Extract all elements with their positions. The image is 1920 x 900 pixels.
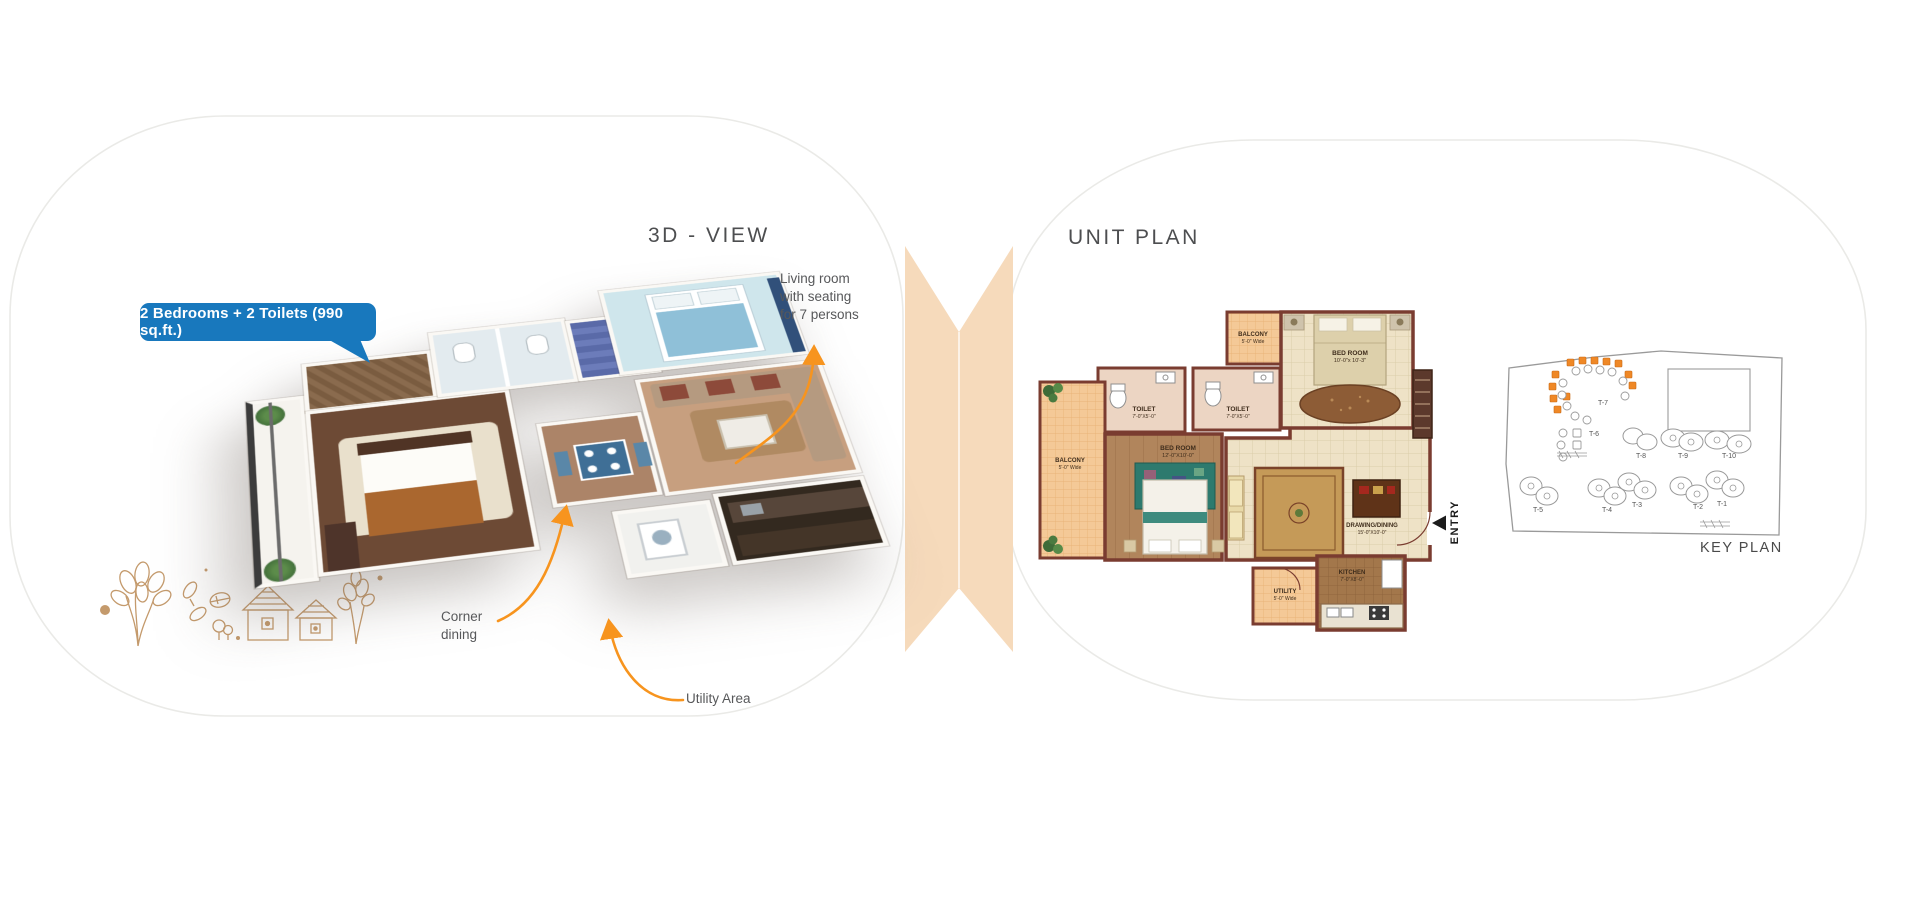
key-plan-tower-t1: T-1 — [1717, 501, 1727, 508]
3d-toilets — [428, 318, 579, 397]
label-balcony-left-size: 5'-0" Wide — [1059, 465, 1082, 471]
unit-plan-title: UNIT PLAN — [1068, 226, 1200, 250]
3d-kitchen — [713, 476, 890, 565]
center-fold-band — [905, 246, 1013, 652]
entry-label: ENTRY — [1449, 500, 1465, 558]
key-plan-tower-t2: T-2 — [1693, 504, 1703, 511]
key-plan-tower-t3: T-3 — [1632, 502, 1642, 509]
label-balcony-top-size: 5'-0" Wide — [1242, 339, 1265, 345]
unit-type-badge-label: 2 Bedrooms + 2 Toilets (990 sq.ft.) — [140, 305, 376, 339]
3d-living-room — [635, 359, 862, 496]
label-balcony-left-name: BALCONY — [1055, 458, 1085, 464]
key-plan-tower-t4: T-4 — [1602, 507, 1612, 514]
key-plan-tower-t8: T-8 — [1636, 453, 1646, 460]
label-bedroom-top-size: 10'-0"x 10'-3" — [1334, 358, 1366, 364]
label-bedroom-mid-name: BED ROOM — [1160, 445, 1196, 452]
label-utility-name: UTILITY — [1274, 589, 1297, 595]
3d-dining — [536, 412, 663, 508]
plan-ornate-rug — [1255, 468, 1343, 558]
plan-console — [1353, 480, 1400, 517]
brochure-page: { "badge": { "label": "2 Bedrooms + 2 To… — [0, 0, 1920, 900]
label-kitchen-name: KITCHEN — [1339, 570, 1366, 576]
label-toilet-left-name: TOILET — [1133, 406, 1156, 413]
3d-master-bedroom — [305, 389, 539, 577]
unit-plan-drawing: BALCONY 5'-0" Wide BED ROOM 10'-0"x 10'-… — [1032, 298, 1462, 643]
key-plan-tower-t5: T-5 — [1533, 507, 1543, 514]
label-bedroom-top-name: BED ROOM — [1332, 350, 1368, 357]
key-plan-drawing: T-1 T-2 T-3 T-4 T-5 T-6 T-7 T-8 T-9 T-10 — [1495, 338, 1795, 563]
plan-wardrobe — [1413, 370, 1432, 438]
label-toilet-right-size: 7'-0"X5'-0" — [1226, 414, 1249, 420]
entry-label-text: ENTRY — [1449, 500, 1461, 544]
annotation-corner-dining: Corner dining — [441, 608, 482, 644]
key-plan-notch — [1668, 369, 1750, 431]
annotation-utility-area: Utility Area — [686, 690, 751, 708]
label-utility-size: 5'-0" Wide — [1274, 596, 1297, 602]
key-plan-tower-t10: T-10 — [1722, 453, 1736, 460]
annotation-living-room: Living room with seating for 7 persons — [780, 270, 859, 323]
key-plan-label: KEY PLAN — [1700, 540, 1783, 556]
plan-fridge — [1382, 560, 1402, 588]
3d-utility — [612, 500, 729, 579]
key-plan-tower-t9: T-9 — [1678, 453, 1688, 460]
key-plan-tower-t6: T-6 — [1589, 431, 1599, 438]
unit-type-badge: 2 Bedrooms + 2 Toilets (990 sq.ft.) — [140, 303, 376, 341]
label-balcony-top-name: BALCONY — [1238, 332, 1268, 338]
plan-oval-rug — [1300, 385, 1400, 423]
label-drawing-dining-size: 15'-0"X10'-0" — [1358, 530, 1387, 536]
label-bedroom-mid-size: 12'-0"X10'-0" — [1162, 453, 1194, 459]
3d-blue-bedroom — [598, 272, 809, 376]
key-plan-tower-t7: T-7 — [1598, 400, 1608, 407]
label-toilet-left-size: 7'-0"X5'-0" — [1132, 414, 1155, 420]
label-drawing-dining-name: DRAWING/DINING — [1346, 523, 1398, 529]
plan-balcony-top — [1227, 312, 1281, 364]
label-toilet-right-name: TOILET — [1227, 406, 1250, 413]
plan-kitchen-counter — [1321, 604, 1403, 628]
label-kitchen-size: 7'-0"X8'-0" — [1340, 577, 1363, 583]
